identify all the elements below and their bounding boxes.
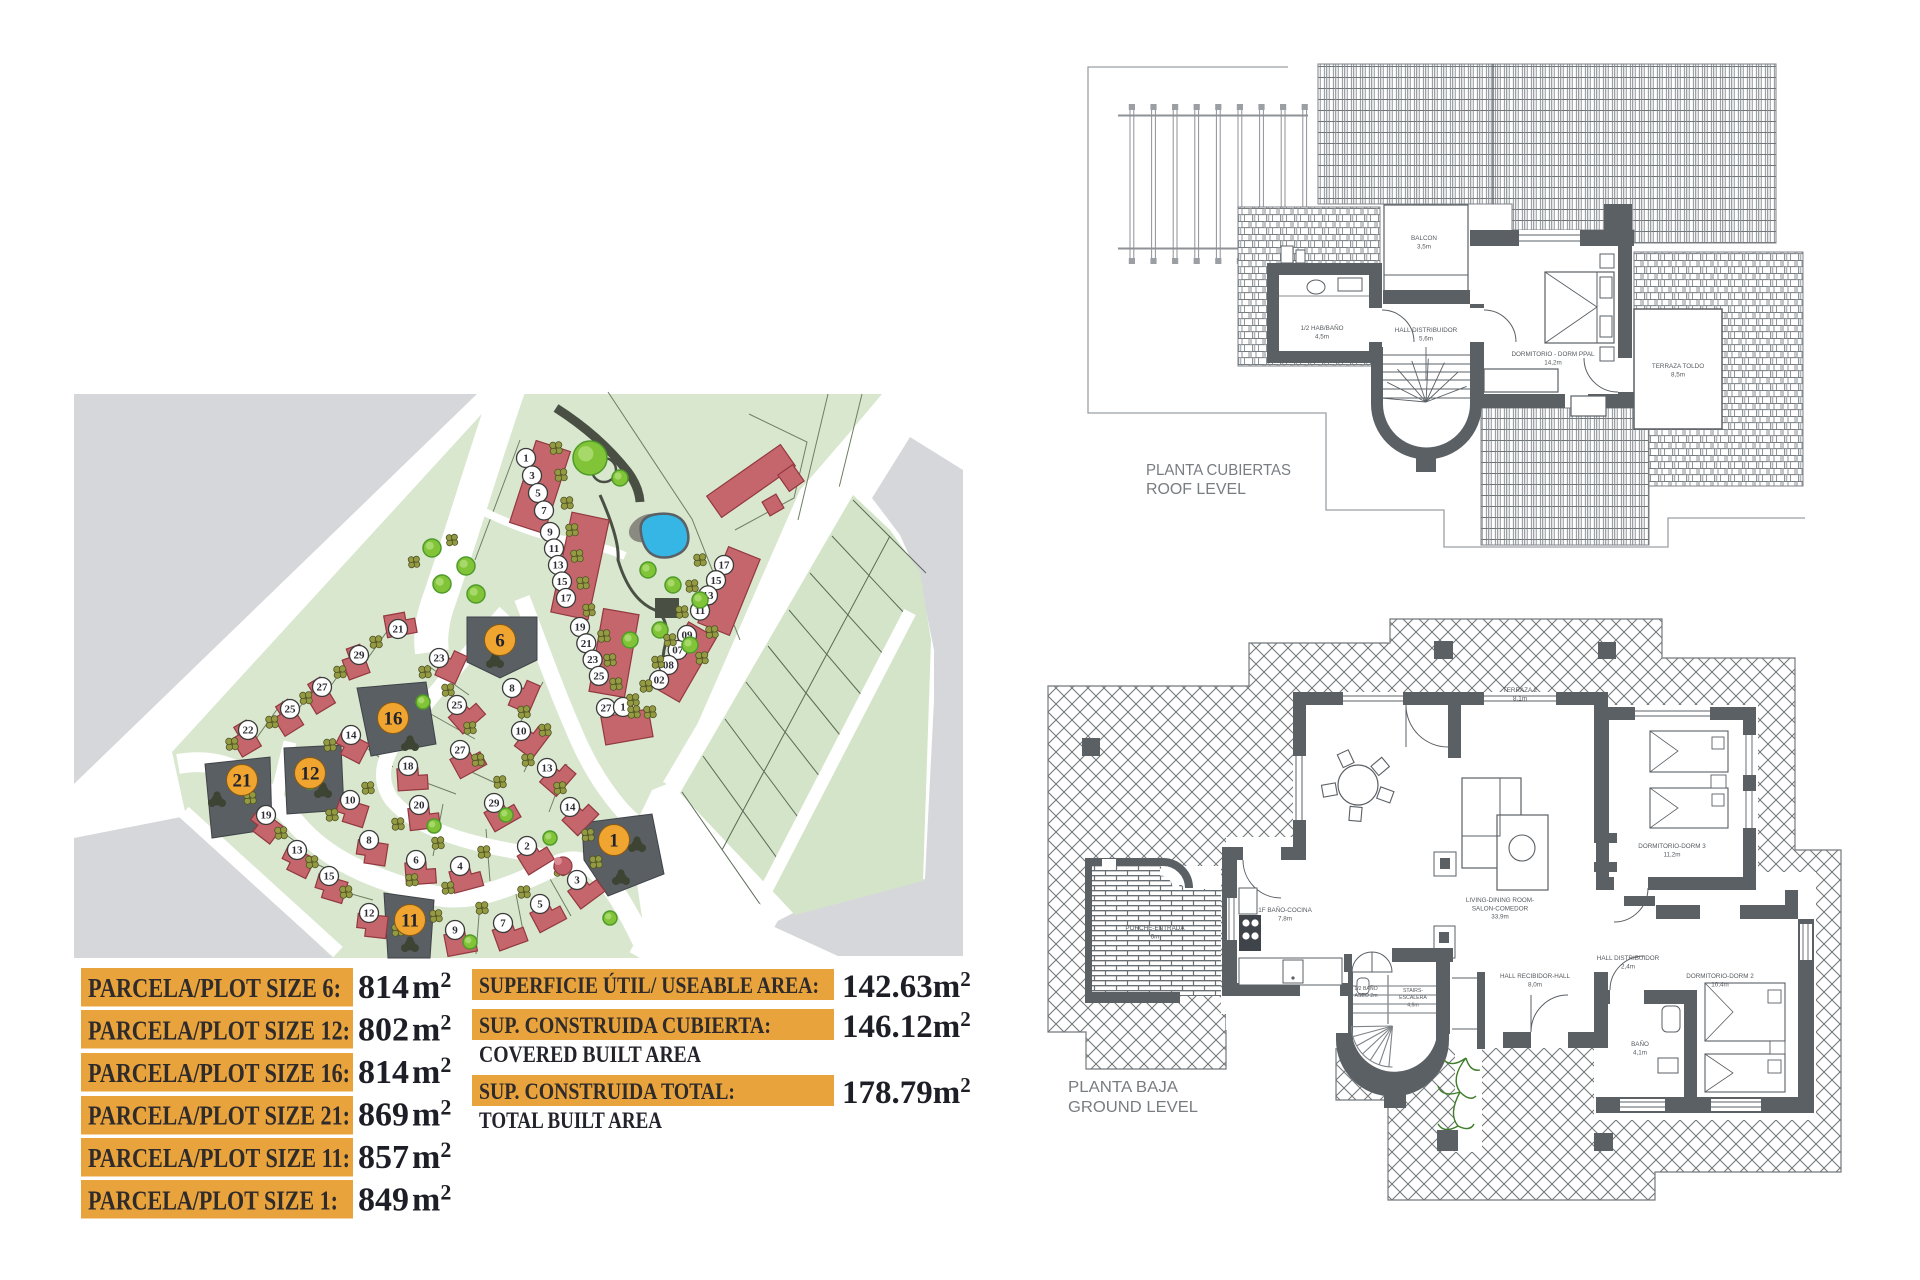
svg-text:19: 19: [261, 810, 273, 822]
svg-text:12: 12: [364, 908, 376, 920]
svg-text:BALCON: BALCON: [1411, 235, 1437, 242]
svg-text:02: 02: [654, 675, 666, 687]
svg-text:25: 25: [285, 704, 297, 716]
svg-text:19: 19: [575, 622, 587, 634]
svg-text:8,5m: 8,5m: [1671, 371, 1685, 378]
svg-text:2: 2: [524, 841, 530, 853]
svg-text:TERRAZA 2: TERRAZA 2: [1503, 687, 1538, 694]
svg-text:STAIRS-: STAIRS-: [1403, 988, 1423, 994]
svg-text:16: 16: [384, 709, 403, 730]
svg-text:4,5m: 4,5m: [1315, 333, 1329, 340]
svg-text:COVERED BUILT AREA: COVERED BUILT AREA: [479, 1042, 701, 1068]
svg-text:PLANTA BAJA: PLANTA BAJA: [1068, 1079, 1179, 1096]
svg-text:3: 3: [529, 470, 535, 482]
svg-text:HALL DISTRIBUIDOR: HALL DISTRIBUIDOR: [1597, 955, 1660, 962]
svg-text:15: 15: [711, 575, 723, 587]
svg-text:PORCHE-ENTRADA: PORCHE-ENTRADA: [1125, 925, 1185, 932]
svg-text:21: 21: [393, 624, 404, 636]
svg-text:5: 5: [537, 899, 543, 911]
svg-text:GROUND LEVEL: GROUND LEVEL: [1068, 1099, 1198, 1116]
svg-text:SALON-COMEDOR: SALON-COMEDOR: [1472, 905, 1529, 912]
svg-text:11: 11: [401, 911, 419, 932]
svg-text:LIVING-DINING ROOM-: LIVING-DINING ROOM-: [1466, 897, 1534, 904]
svg-text:7: 7: [541, 505, 547, 517]
svg-text:8,1m: 8,1m: [1513, 695, 1527, 702]
svg-text:23: 23: [587, 654, 599, 666]
svg-text:ASEO 2m: ASEO 2m: [1354, 993, 1377, 999]
svg-text:ESCALERA: ESCALERA: [1399, 995, 1427, 1001]
svg-text:29: 29: [489, 798, 501, 810]
svg-text:814m2: 814m2: [358, 967, 451, 1006]
svg-text:BAÑO: BAÑO: [1631, 1039, 1649, 1048]
svg-text:DORMITORIO-DORM 2: DORMITORIO-DORM 2: [1686, 973, 1754, 980]
svg-text:146.12m2: 146.12m2: [842, 1007, 971, 1045]
svg-text:7,8m: 7,8m: [1278, 915, 1292, 922]
svg-text:PARCELA/PLOT SIZE 16:: PARCELA/PLOT SIZE 16:: [88, 1058, 350, 1088]
svg-text:PARCELA/PLOT SIZE 6:: PARCELA/PLOT SIZE 6:: [88, 973, 341, 1003]
svg-text:14: 14: [565, 802, 577, 814]
svg-text:SUP. CONSTRUIDA CUBIERTA:: SUP. CONSTRUIDA CUBIERTA:: [479, 1013, 771, 1039]
svg-text:3: 3: [574, 875, 580, 887]
svg-text:PARCELA/PLOT SIZE 11:: PARCELA/PLOT SIZE 11:: [88, 1143, 350, 1173]
svg-text:HALL DISTRIBUIDOR: HALL DISTRIBUIDOR: [1395, 327, 1458, 334]
svg-text:PARCELA/PLOT SIZE 12:: PARCELA/PLOT SIZE 12:: [88, 1016, 350, 1046]
svg-text:6: 6: [413, 855, 419, 867]
svg-text:1: 1: [620, 702, 626, 714]
svg-text:4,1m: 4,1m: [1633, 1049, 1647, 1056]
svg-text:8: 8: [366, 835, 372, 847]
svg-text:6: 6: [495, 631, 505, 652]
svg-text:13: 13: [292, 845, 304, 857]
svg-text:18: 18: [403, 761, 415, 773]
svg-text:857m2: 857m2: [358, 1137, 451, 1176]
svg-text:PARCELA/PLOT SIZE 1:: PARCELA/PLOT SIZE 1:: [88, 1186, 338, 1216]
svg-text:PARCELA/PLOT SIZE 21:: PARCELA/PLOT SIZE 21:: [88, 1101, 350, 1131]
svg-text:17: 17: [561, 593, 573, 605]
svg-text:27: 27: [601, 703, 613, 715]
svg-text:1/2 HAB/BAÑO: 1/2 HAB/BAÑO: [1300, 323, 1343, 332]
svg-text:TOTAL BUILT AREA: TOTAL BUILT AREA: [479, 1108, 662, 1134]
svg-text:849m2: 849m2: [358, 1180, 451, 1219]
svg-text:7: 7: [500, 918, 506, 930]
svg-text:TERRAZA TOLDO: TERRAZA TOLDO: [1652, 363, 1704, 370]
svg-text:DORMITORIO - DORM PPAL: DORMITORIO - DORM PPAL: [1511, 351, 1595, 358]
svg-text:13: 13: [553, 560, 565, 572]
svg-text:142.63m2: 142.63m2: [842, 967, 971, 1005]
svg-text:8: 8: [509, 683, 515, 695]
svg-text:17: 17: [719, 560, 731, 572]
svg-text:13: 13: [542, 763, 554, 775]
svg-text:29: 29: [354, 650, 366, 662]
svg-text:869m2: 869m2: [358, 1095, 451, 1134]
svg-text:25: 25: [452, 700, 464, 712]
svg-text:10: 10: [345, 795, 357, 807]
svg-text:HALL RECIBIDOR-HALL: HALL RECIBIDOR-HALL: [1500, 973, 1571, 980]
svg-text:814m2: 814m2: [358, 1052, 451, 1091]
svg-text:9: 9: [452, 925, 458, 937]
svg-text:4: 4: [457, 861, 463, 873]
svg-text:1: 1: [523, 453, 529, 465]
svg-text:23: 23: [434, 653, 446, 665]
svg-text:8,0m: 8,0m: [1528, 981, 1542, 988]
svg-text:2,4m: 2,4m: [1621, 963, 1635, 970]
svg-text:21: 21: [233, 771, 252, 792]
svg-text:178.79m2: 178.79m2: [842, 1073, 971, 1111]
svg-text:802m2: 802m2: [358, 1010, 451, 1049]
svg-text:21: 21: [581, 638, 592, 650]
svg-text:1/2 BAÑO: 1/2 BAÑO: [1354, 985, 1377, 992]
svg-text:11: 11: [549, 543, 559, 555]
svg-text:20: 20: [414, 800, 426, 812]
svg-text:ROOF LEVEL: ROOF LEVEL: [1146, 481, 1246, 498]
svg-text:22: 22: [243, 725, 255, 737]
svg-text:15: 15: [557, 576, 569, 588]
svg-text:5: 5: [535, 488, 541, 500]
svg-text:10: 10: [516, 726, 528, 738]
svg-text:27: 27: [455, 745, 467, 757]
svg-text:SUPERFICIE ÚTIL/ USEABLE AREA:: SUPERFICIE ÚTIL/ USEABLE AREA:: [479, 973, 819, 999]
svg-text:1: 1: [609, 831, 619, 852]
svg-text:3,5m: 3,5m: [1417, 243, 1431, 250]
svg-text:PLANTA CUBIERTAS: PLANTA CUBIERTAS: [1146, 462, 1291, 479]
svg-text:1F BAÑO-COCINA: 1F BAÑO-COCINA: [1258, 905, 1312, 914]
svg-text:9: 9: [547, 527, 553, 539]
svg-text:33,9m: 33,9m: [1491, 914, 1509, 921]
svg-text:25: 25: [593, 671, 605, 683]
svg-text:DORMITORIO-DORM 3: DORMITORIO-DORM 3: [1638, 843, 1706, 850]
svg-text:27: 27: [317, 682, 329, 694]
svg-text:14,2m: 14,2m: [1544, 359, 1562, 366]
svg-text:SUP. CONSTRUIDA TOTAL:: SUP. CONSTRUIDA TOTAL:: [479, 1079, 735, 1105]
svg-text:10,4m: 10,4m: [1711, 981, 1729, 988]
svg-text:11,2m: 11,2m: [1663, 851, 1680, 858]
svg-text:14: 14: [346, 730, 358, 742]
svg-text:08: 08: [663, 660, 675, 672]
svg-text:6m: 6m: [1151, 933, 1160, 940]
svg-text:4,6m: 4,6m: [1407, 1002, 1419, 1008]
svg-text:15: 15: [324, 871, 336, 883]
svg-text:12: 12: [301, 764, 320, 785]
svg-text:5,6m: 5,6m: [1419, 335, 1433, 342]
